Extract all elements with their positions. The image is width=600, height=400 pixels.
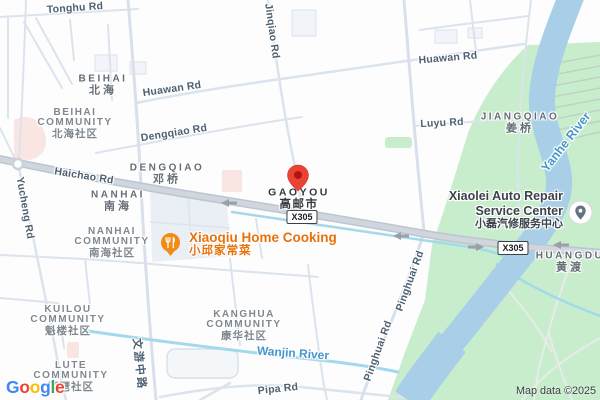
road-label-luyu: Luyu Rd [420,116,464,130]
poi-label-xiaolei[interactable]: Xiaolei Auto Repair Service Center 小磊汽修服… [449,189,563,232]
place-pin-icon[interactable] [568,200,593,230]
map-data-attribution: Map data ©2025 [516,385,596,397]
community-kuilou: KUILOU COMMUNITY 魁楼社区 [30,305,105,337]
route-shield-x305-east: X305 [497,241,528,255]
google-logo[interactable]: Google [6,377,64,398]
roundabout [13,159,23,169]
locality-jiangqiao: JIANGQIAO 姜桥 [481,112,560,135]
poi-label-xiaoqiu[interactable]: Xiaoqiu Home Cooking 小邱家常菜 [189,231,337,258]
community-kanghua: KANGHUA COMMUNITY 康华社区 [206,310,281,342]
restaurant-icon[interactable] [160,232,181,262]
large-building-outline [167,349,238,378]
locality-nanhai: NANHAI 南海 [91,190,145,213]
locality-huangdu: HUANGDU 黄渡 [536,251,600,274]
locality-dengqiao: DENGQIAO 邓桥 [130,163,204,186]
route-shield-x305-west: X305 [286,210,317,224]
red-map-pin-icon[interactable] [286,164,310,197]
map-viewport[interactable]: Tonghu Rd Jinqiao Rd Huawan Rd Huawan Rd… [0,0,600,400]
community-nanhai: NANHAI COMMUNITY 南海社区 [74,227,149,259]
locality-beihai: BEIHAI 北海 [79,74,128,97]
community-beihai: BEIHAI COMMUNITY 北海社区 [37,108,112,140]
